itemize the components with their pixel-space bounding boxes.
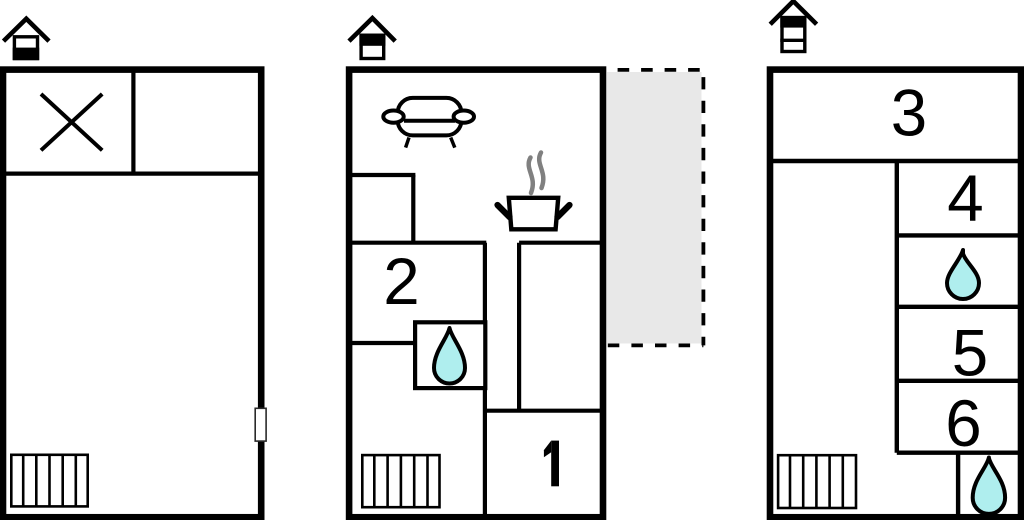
- svg-text:3: 3: [891, 77, 927, 150]
- svg-text:4: 4: [947, 162, 983, 235]
- svg-text:6: 6: [945, 387, 981, 460]
- svg-text:2: 2: [383, 245, 419, 318]
- svg-text:5: 5: [952, 317, 988, 390]
